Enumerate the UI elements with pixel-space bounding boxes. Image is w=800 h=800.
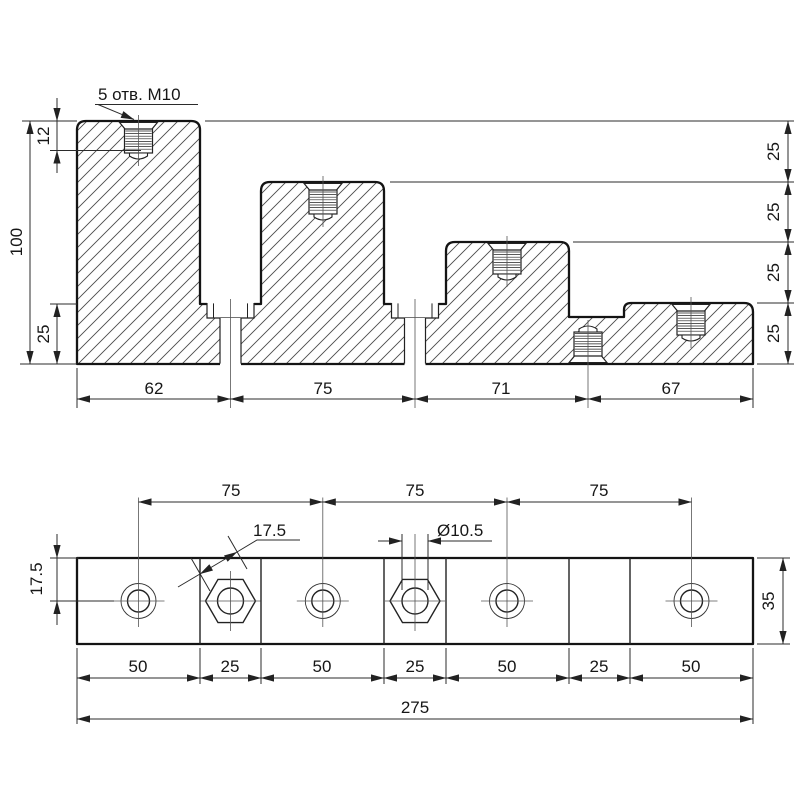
dim-pitch-1: 75 bbox=[222, 481, 241, 500]
drawing-sheet: 5 отв. М10 12 100 25 62 75 71 67 25 25 2… bbox=[0, 0, 800, 800]
dim-seg-5: 50 bbox=[498, 657, 517, 676]
dim-thread-depth: 12 bbox=[34, 127, 53, 146]
dim-plate-width: 35 bbox=[759, 592, 778, 611]
dim-seg-6: 25 bbox=[590, 657, 609, 676]
dim-step-width-3: 71 bbox=[492, 379, 511, 398]
dim-seg-3: 50 bbox=[313, 657, 332, 676]
dim-hex-across-flats: 17.5 bbox=[253, 521, 286, 540]
dim-step-height-2: 25 bbox=[764, 203, 783, 222]
callout-thread-label: 5 отв. М10 bbox=[98, 85, 181, 104]
dim-step-width-4: 67 bbox=[662, 379, 681, 398]
dim-seg-7: 50 bbox=[682, 657, 701, 676]
front-section-view: 5 отв. М10 12 100 25 62 75 71 67 25 25 2… bbox=[7, 85, 794, 408]
dim-total-height: 100 bbox=[7, 228, 26, 256]
dim-step-height-4: 25 bbox=[764, 324, 783, 343]
dim-base-height: 25 bbox=[34, 325, 53, 344]
dim-step-width-2: 75 bbox=[314, 379, 333, 398]
dim-step-width-1: 62 bbox=[145, 379, 164, 398]
dim-step-height-3: 25 bbox=[764, 263, 783, 282]
dim-pitch-2: 75 bbox=[406, 481, 425, 500]
dim-seg-4: 25 bbox=[406, 657, 425, 676]
dim-seg-1: 50 bbox=[129, 657, 148, 676]
dim-edge-to-center: 17.5 bbox=[27, 562, 46, 595]
dim-step-height-1: 25 bbox=[764, 142, 783, 161]
dim-pitch-3: 75 bbox=[590, 481, 609, 500]
callout-leader bbox=[95, 105, 198, 120]
engineering-drawing: 5 отв. М10 12 100 25 62 75 71 67 25 25 2… bbox=[0, 0, 800, 800]
dim-total-length: 275 bbox=[401, 698, 429, 717]
dim-hole-diameter: Ø10.5 bbox=[437, 521, 483, 540]
dim-seg-2: 25 bbox=[221, 657, 240, 676]
plan-view: 75 75 75 17.5 Ø10.5 17.5 35 50 25 50 25 … bbox=[27, 481, 790, 724]
